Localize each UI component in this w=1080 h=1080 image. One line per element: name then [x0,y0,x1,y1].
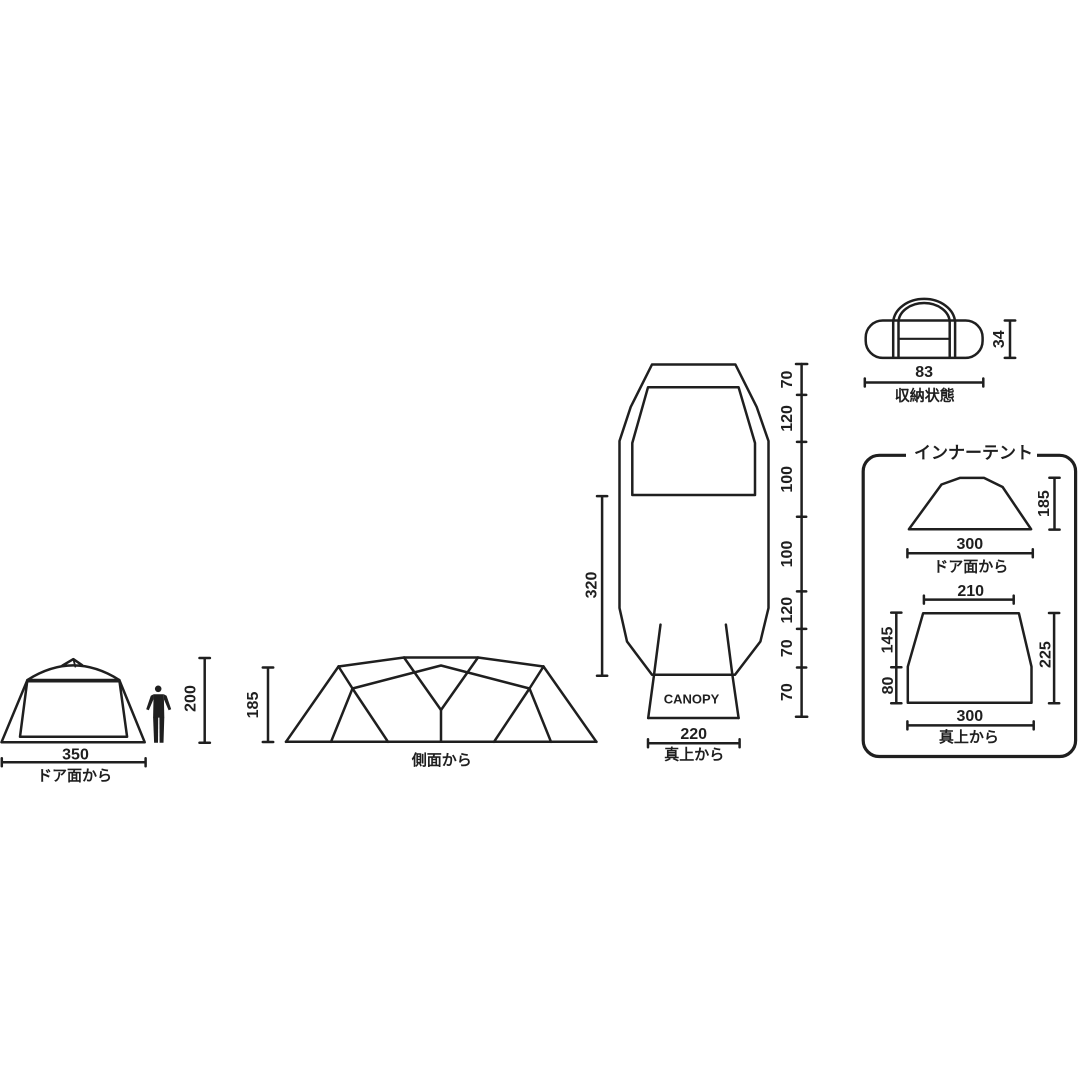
svg-text:34: 34 [991,330,1008,348]
svg-text:185: 185 [1036,490,1053,517]
svg-text:83: 83 [915,364,933,381]
svg-text:120: 120 [779,597,796,624]
svg-text:300: 300 [956,708,983,725]
svg-text:側面から: 側面から [411,751,472,769]
svg-text:収納状態: 収納状態 [895,386,955,404]
svg-text:真上から: 真上から [664,746,724,764]
svg-text:100: 100 [779,466,796,493]
svg-text:CANOPY: CANOPY [664,692,720,707]
svg-text:120: 120 [779,405,796,432]
svg-text:220: 220 [680,726,707,743]
svg-text:80: 80 [880,677,897,695]
svg-text:320: 320 [583,572,600,599]
svg-text:70: 70 [779,683,796,701]
svg-text:真上から: 真上から [939,728,999,746]
svg-text:200: 200 [182,685,199,712]
svg-text:インナーテント: インナーテント [914,444,1033,463]
svg-text:ドア面から: ドア面から [37,768,112,785]
svg-text:300: 300 [956,536,983,553]
svg-text:210: 210 [957,583,984,600]
svg-text:185: 185 [245,692,262,719]
svg-text:145: 145 [879,627,896,654]
svg-text:350: 350 [62,747,89,764]
svg-text:100: 100 [779,541,796,568]
svg-text:ドア面から: ドア面から [933,559,1008,576]
svg-text:70: 70 [779,639,796,657]
svg-text:225: 225 [1038,641,1055,668]
svg-text:70: 70 [779,371,796,389]
